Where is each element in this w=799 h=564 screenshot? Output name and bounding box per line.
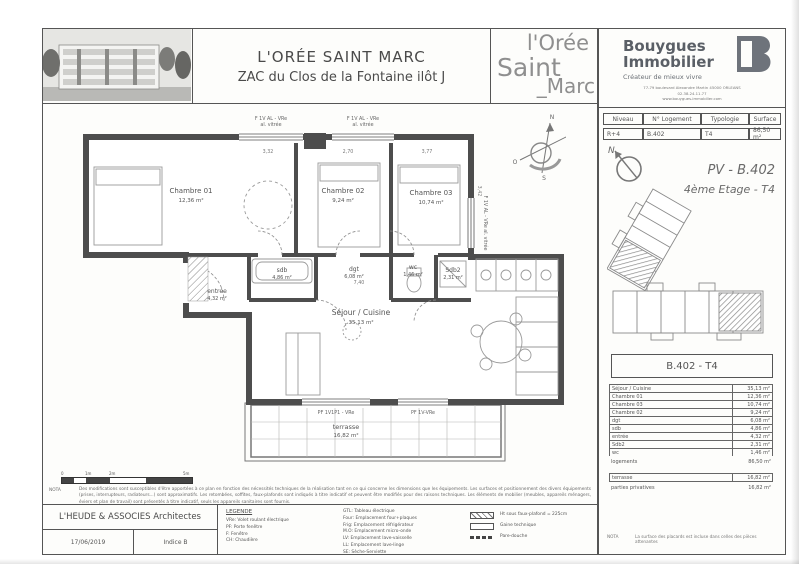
area-value: 1,46 m² [732, 449, 772, 456]
total-label: logements [609, 457, 733, 466]
window2-sublabel: al. vitrée [352, 121, 373, 128]
brand-name: Bouygues Immobilier [623, 39, 714, 71]
area-value: 6,08 m² [732, 417, 772, 424]
terrace-label: terrasse [610, 474, 732, 481]
terrace-door2-label: PF 1V-VRe [411, 410, 435, 416]
window2-label: F 1V AL - VRe [347, 116, 379, 122]
label-entree: entrée [207, 288, 227, 295]
value-surface: 86,50 m² [749, 128, 781, 140]
area-sdb2: 2,31 m² [443, 275, 463, 281]
label-chambre02: Chambre 02 [321, 187, 364, 195]
hatch-symbol [470, 512, 494, 519]
area-sdb: 4,86 m² [272, 275, 292, 281]
scale-segments [61, 477, 193, 484]
scale-labels: 0 1m 2m 5m [61, 471, 201, 477]
value-typologie: T4 [701, 128, 749, 140]
floor-plan-drawing: Chambre 01 12,36 m² Chambre 02 9,24 m² C… [46, 105, 566, 467]
project-subtitle: ZAC du Clos de la Fontaine ilôt J [238, 70, 446, 85]
compass-s: S [542, 175, 546, 182]
area-row: Sdb2 2,31 m² [609, 440, 773, 448]
label-chambre01: Chambre 01 [169, 187, 212, 195]
scale-1m: 1m [85, 471, 91, 476]
shower-screen-symbol [470, 536, 494, 539]
legend-item: SE: Sèche-Serviette [343, 550, 417, 557]
brand-block: Bouygues Immobilier Créateur de mieux vi… [599, 29, 785, 108]
area-row: sdb 4,86 m² [609, 424, 773, 432]
scale-5m: 5m [183, 471, 189, 476]
area-value: 12,36 m² [732, 393, 772, 400]
legend-item: Four: Emplacement four+plaques [343, 516, 417, 523]
areas-table: Séjour / Cuisine 35,13 m² Chambre 01 12,… [609, 384, 773, 466]
area-chambre01: 12,36 m² [178, 197, 203, 204]
area-sejour: 35,13 m² [348, 319, 373, 326]
compass-north-label: N [608, 146, 615, 156]
value-niveau: R+4 [603, 128, 643, 140]
drawing-date: 17/06/2019 [43, 530, 134, 554]
plan-reference: PV - B.402 [707, 163, 775, 178]
area-label: Chambre 02 [610, 409, 732, 416]
area-row: Chambre 02 9,24 m² [609, 408, 773, 416]
drawing-sheet: L'ORÉE SAINT MARC ZAC du Clos de la Font… [42, 28, 598, 555]
outer-walls [86, 137, 561, 402]
header-niveau: Niveau [603, 113, 643, 125]
area-row: dgt 6,08 m² [609, 416, 773, 424]
terrace-value: 16,82 m² [732, 474, 772, 481]
area-label: wc [610, 449, 732, 456]
unit-title-box: B.402 - T4 [611, 354, 773, 378]
scale-0: 0 [61, 471, 64, 476]
logo-line1: l'Orée [527, 31, 589, 55]
legend-item: GTL: Tableau électrique [343, 509, 417, 516]
label-wc: wc [409, 264, 417, 271]
area-value: 2,31 m² [732, 441, 772, 448]
area-row: entrée 4,32 m² [609, 432, 773, 440]
panel-nota: NOTA La surface des placards est incluse… [607, 534, 779, 544]
duct-symbol [470, 523, 494, 530]
keyplan-building-linear [613, 283, 763, 340]
legend-column-1: VRe: Volet roulant électrique PF: Porte … [226, 518, 289, 545]
panel-nota-text: La surface des placards est incluse dans… [635, 534, 779, 544]
window1-sublabel: al. vitrée [260, 121, 281, 128]
label-sejour: Séjour / Cuisine [332, 308, 391, 317]
unit-summary-table: Niveau N° Logement Typologie Surface R+4… [603, 113, 781, 143]
unit-table-header: Niveau N° Logement Typologie Surface [603, 113, 781, 125]
panel-nota-label: NOTA [607, 534, 635, 544]
area-wc: 1,46 m² [403, 272, 423, 278]
brand-name-line2: Immobilier [623, 55, 714, 71]
label-dgt: dgt [349, 266, 360, 273]
header-typologie: Typologie [701, 113, 749, 125]
terrasse-zone [245, 403, 505, 461]
project-logo: l'Orée Saint _Marc [491, 29, 597, 103]
terrace-row: terrasse 16,82 m² [609, 473, 773, 482]
legend-symbol-row: Pare-douche [470, 534, 567, 541]
legend-column-2: GTL: Tableau électrique Four: Emplacemen… [343, 509, 417, 557]
terrace-table: terrasse 16,82 m² parties privatives 16,… [609, 473, 773, 492]
area-value: 4,86 m² [732, 425, 772, 432]
value-logement: B.402 [643, 128, 701, 140]
scan-edge-right [791, 0, 799, 564]
project-title: L'ORÉE SAINT MARC [257, 48, 425, 66]
brand-tagline: Créateur de mieux vivre [623, 73, 702, 81]
area-label: Chambre 03 [610, 401, 732, 408]
area-value: 4,32 m² [732, 433, 772, 440]
key-plan [607, 187, 779, 349]
private-label: parties privatives [609, 483, 733, 492]
compass-o: O [513, 159, 518, 166]
area-terrasse: 16,82 m² [333, 432, 358, 439]
dim-4: 3,42 [476, 186, 482, 197]
label-sdb: sdb [277, 267, 288, 274]
legend-block: LEGENDE VRe: Volet roulant électrique PF… [218, 504, 597, 554]
area-label: dgt [610, 417, 732, 424]
compass-n: N [550, 114, 555, 121]
floor-plan: Chambre 01 12,36 m² Chambre 02 9,24 m² C… [46, 105, 566, 467]
dim-2: 2,70 [343, 149, 354, 155]
area-row: wc 1,46 m² [609, 448, 773, 456]
window3-label: F 1V AL - VRe al. vitrée [482, 196, 489, 251]
legend-item: LL: Emplacement lave-linge [343, 543, 417, 550]
scanned-plan-sheet: L'ORÉE SAINT MARC ZAC du Clos de la Font… [0, 0, 799, 564]
legend-title: LEGENDE [226, 508, 252, 517]
scale-bar: 0 1m 2m 5m [61, 471, 201, 485]
label-terrasse: terrasse [333, 423, 360, 431]
legend-symbol-row: Gaine technique [470, 523, 567, 530]
legend-symbol-row: Ht sous faux-plafond = 225cm [470, 512, 567, 519]
window1-label: F 1V AL - VRe [255, 116, 287, 122]
architect-block: L'HEUDE & ASSOCIES Architectes 17/06/201… [43, 504, 218, 554]
area-label: entrée [610, 433, 732, 440]
scale-2m: 2m [109, 471, 115, 476]
area-label: Sdb2 [610, 441, 732, 448]
sheet-header: L'ORÉE SAINT MARC ZAC du Clos de la Font… [43, 29, 597, 104]
area-row: Chambre 01 12,36 m² [609, 392, 773, 400]
dim-3: 3,77 [422, 149, 433, 155]
plan-compass: N E O S [513, 114, 566, 182]
building-photo [43, 29, 193, 103]
building-photo-art [43, 29, 191, 101]
scan-edge-bottom [0, 559, 799, 564]
header-surface: Surface [749, 113, 781, 125]
area-label: Chambre 01 [610, 393, 732, 400]
legend-symbol-label: Pare-douche [500, 534, 527, 541]
sheet-footer: L'HEUDE & ASSOCIES Architectes 17/06/201… [43, 504, 597, 554]
area-entree: 4,32 m² [207, 296, 227, 302]
area-label: sdb [610, 425, 732, 432]
legend-item: PF: Porte fenêtre [226, 525, 289, 532]
area-chambre02: 9,24 m² [332, 197, 354, 204]
label-sdb2: Sdb2 [445, 267, 460, 274]
unit-table-row: R+4 B.402 T4 86,50 m² [603, 128, 781, 140]
terrace-door1-label: PF 1V1P1 - VRe [318, 410, 355, 416]
legend-column-symbols: Ht sous faux-plafond = 225cm Gaine techn… [470, 512, 567, 545]
area-label: Séjour / Cuisine [610, 385, 732, 392]
area-value: 10,74 m² [732, 401, 772, 408]
title-block-panel: Bouygues Immobilier Créateur de mieux vi… [598, 28, 786, 555]
revision-index: Indice B [134, 530, 217, 554]
architect-name: L'HEUDE & ASSOCIES Architectes [43, 505, 217, 530]
dim-5: 7,40 [354, 280, 365, 286]
area-dgt: 6,08 m² [344, 274, 364, 280]
brand-website: www.bouygues-immobilier.com [599, 96, 785, 102]
area-value: 35,13 m² [732, 385, 772, 392]
dim-1: 3,32 [263, 149, 274, 155]
logo-line3: _Marc [537, 74, 595, 98]
areas-total-row: logements 86,50 m² [609, 457, 773, 466]
private-areas-row: parties privatives 16,82 m² [609, 483, 773, 492]
private-value: 16,82 m² [733, 483, 773, 492]
header-logement: N° Logement [643, 113, 701, 125]
area-row: Séjour / Cuisine 35,13 m² [609, 384, 773, 392]
total-value: 86,50 m² [733, 457, 773, 466]
legend-symbol-label: Ht sous faux-plafond = 225cm [500, 512, 567, 519]
legend-item: VRe: Volet roulant électrique [226, 518, 289, 525]
area-value: 9,24 m² [732, 409, 772, 416]
architect-meta: 17/06/2019 Indice B [43, 530, 217, 554]
wall-column [304, 133, 326, 149]
bouygues-b-logo-icon [729, 35, 771, 77]
brand-address: 77-79 boulevard Alexandre Martin 45000 O… [599, 85, 785, 102]
label-chambre03: Chambre 03 [409, 189, 452, 197]
legend-symbol-label: Gaine technique [500, 523, 536, 530]
keyplan-building-tilted [607, 187, 691, 291]
faux-plafond-hatch [188, 257, 208, 301]
north-compass-icon: N [607, 141, 647, 191]
area-chambre03: 10,74 m² [418, 199, 443, 206]
legend-item: CH: Chaudière [226, 538, 289, 545]
area-row: Chambre 03 10,74 m² [609, 400, 773, 408]
project-title-block: L'ORÉE SAINT MARC ZAC du Clos de la Font… [193, 29, 491, 103]
